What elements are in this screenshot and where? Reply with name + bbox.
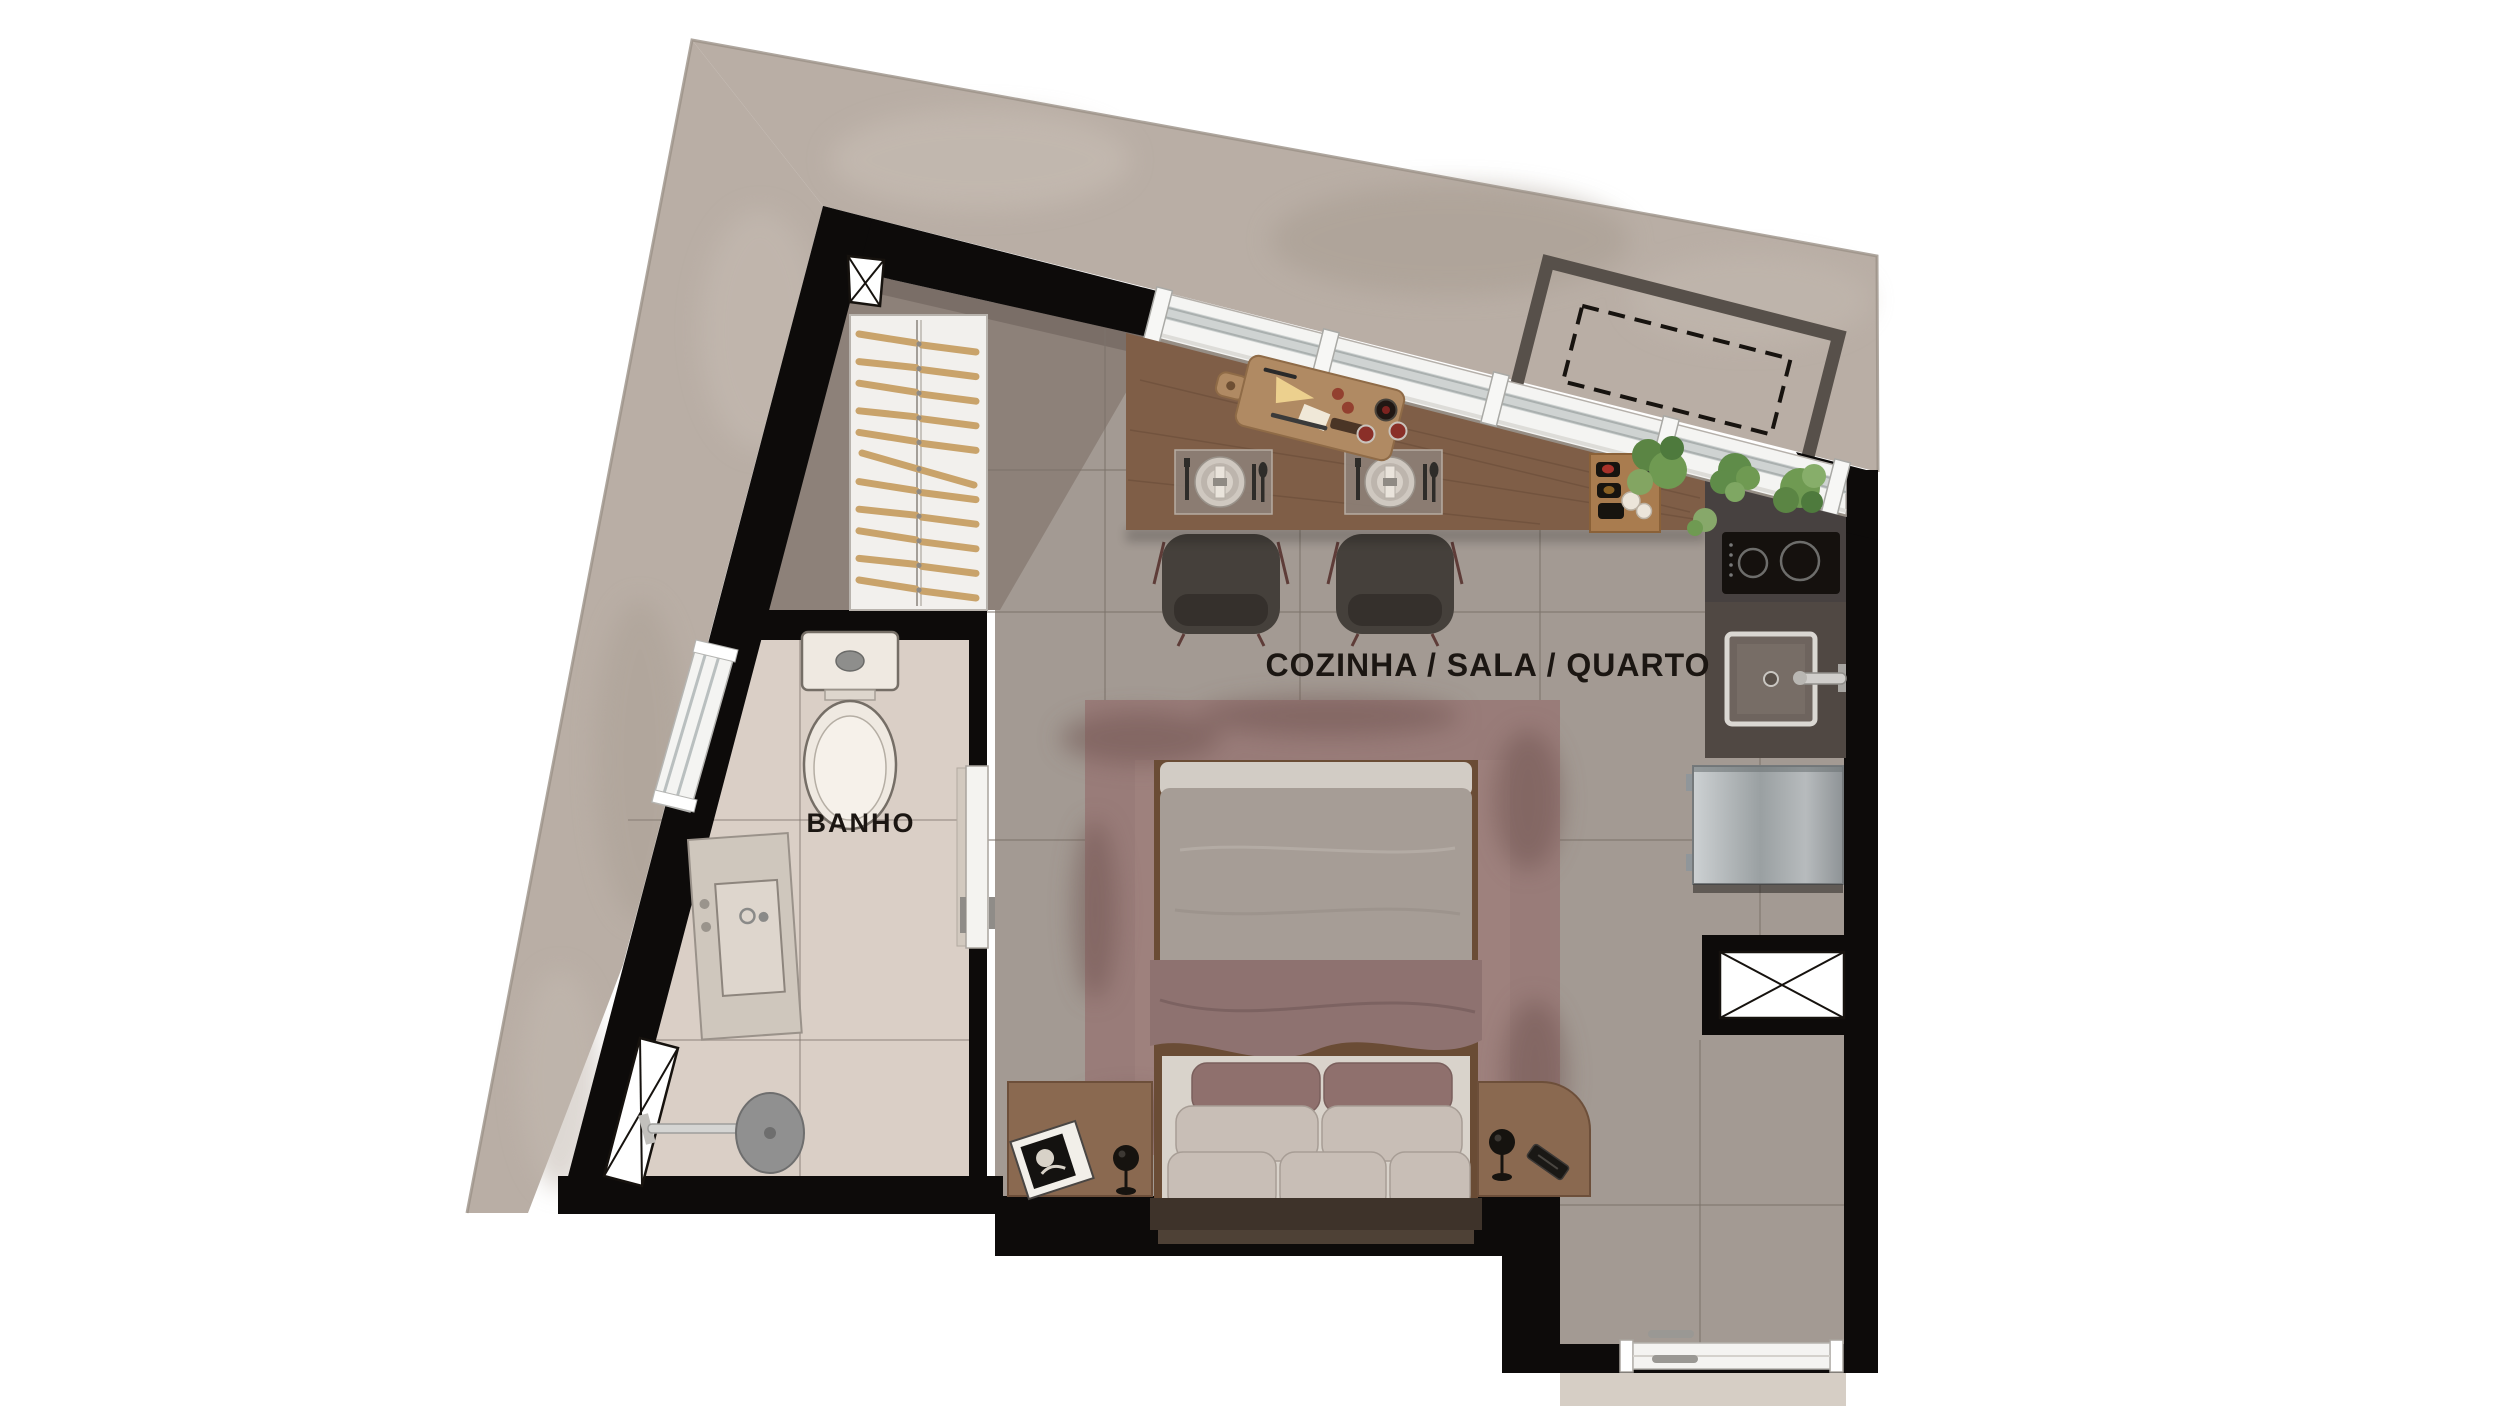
- wine-glass: [1390, 423, 1407, 440]
- wine-glass: [1358, 426, 1375, 443]
- headboard-shelf: [1158, 1230, 1474, 1244]
- place-setting-1: [1175, 450, 1272, 514]
- place-setting-2: [1345, 450, 1442, 514]
- nightstand-left: [1008, 1082, 1152, 1199]
- bathroom-door: [957, 766, 995, 948]
- label-main-room: COZINHA / SALA / QUARTO: [1266, 647, 1711, 683]
- knife: [1252, 464, 1256, 500]
- vanity: [688, 833, 802, 1039]
- wall-bath-partition-upper: [969, 612, 987, 766]
- entry-door-handle-outer: [1652, 1355, 1698, 1363]
- knife: [1423, 464, 1427, 500]
- jar: [1598, 503, 1624, 519]
- nightstand-right: [1478, 1082, 1590, 1196]
- cooktop: [1722, 532, 1840, 594]
- vanity-sink: [715, 880, 785, 996]
- closet: [850, 315, 987, 610]
- entry-threshold-strip: [1560, 1373, 1846, 1406]
- shaft-marker-corner: [848, 256, 884, 306]
- flush-button: [836, 651, 864, 671]
- duvet: [1160, 788, 1472, 974]
- floor-plan-page: COZINHA / SALA / QUARTO BANHO: [0, 0, 2500, 1406]
- toilet: [802, 632, 898, 829]
- wall-east: [1844, 470, 1878, 1373]
- headboard: [1150, 1198, 1482, 1230]
- bathroom-door-handle-outer: [989, 897, 995, 929]
- drain: [1764, 672, 1778, 686]
- bathroom-door-leaf: [966, 766, 988, 948]
- chair-2: [1328, 534, 1462, 646]
- shower-arm: [648, 1124, 746, 1133]
- bathroom-door-handle-inner: [960, 897, 966, 933]
- spoon: [1430, 462, 1439, 478]
- fork: [1185, 464, 1189, 500]
- kitchen-sink: [1705, 602, 1846, 758]
- floor-plan: COZINHA / SALA / QUARTO BANHO: [0, 0, 2500, 1406]
- fork: [1356, 464, 1360, 500]
- label-bathroom: BANHO: [807, 808, 916, 838]
- shaft-marker-east: [1720, 952, 1844, 1018]
- entry-door-handle-inner: [1648, 1330, 1694, 1338]
- wall-bath-partition-lower: [969, 948, 987, 1198]
- bed: [1150, 760, 1482, 1244]
- garlic: [1637, 504, 1652, 519]
- fridge: [1686, 766, 1843, 893]
- chair-1: [1154, 534, 1288, 646]
- spoon: [1259, 462, 1268, 478]
